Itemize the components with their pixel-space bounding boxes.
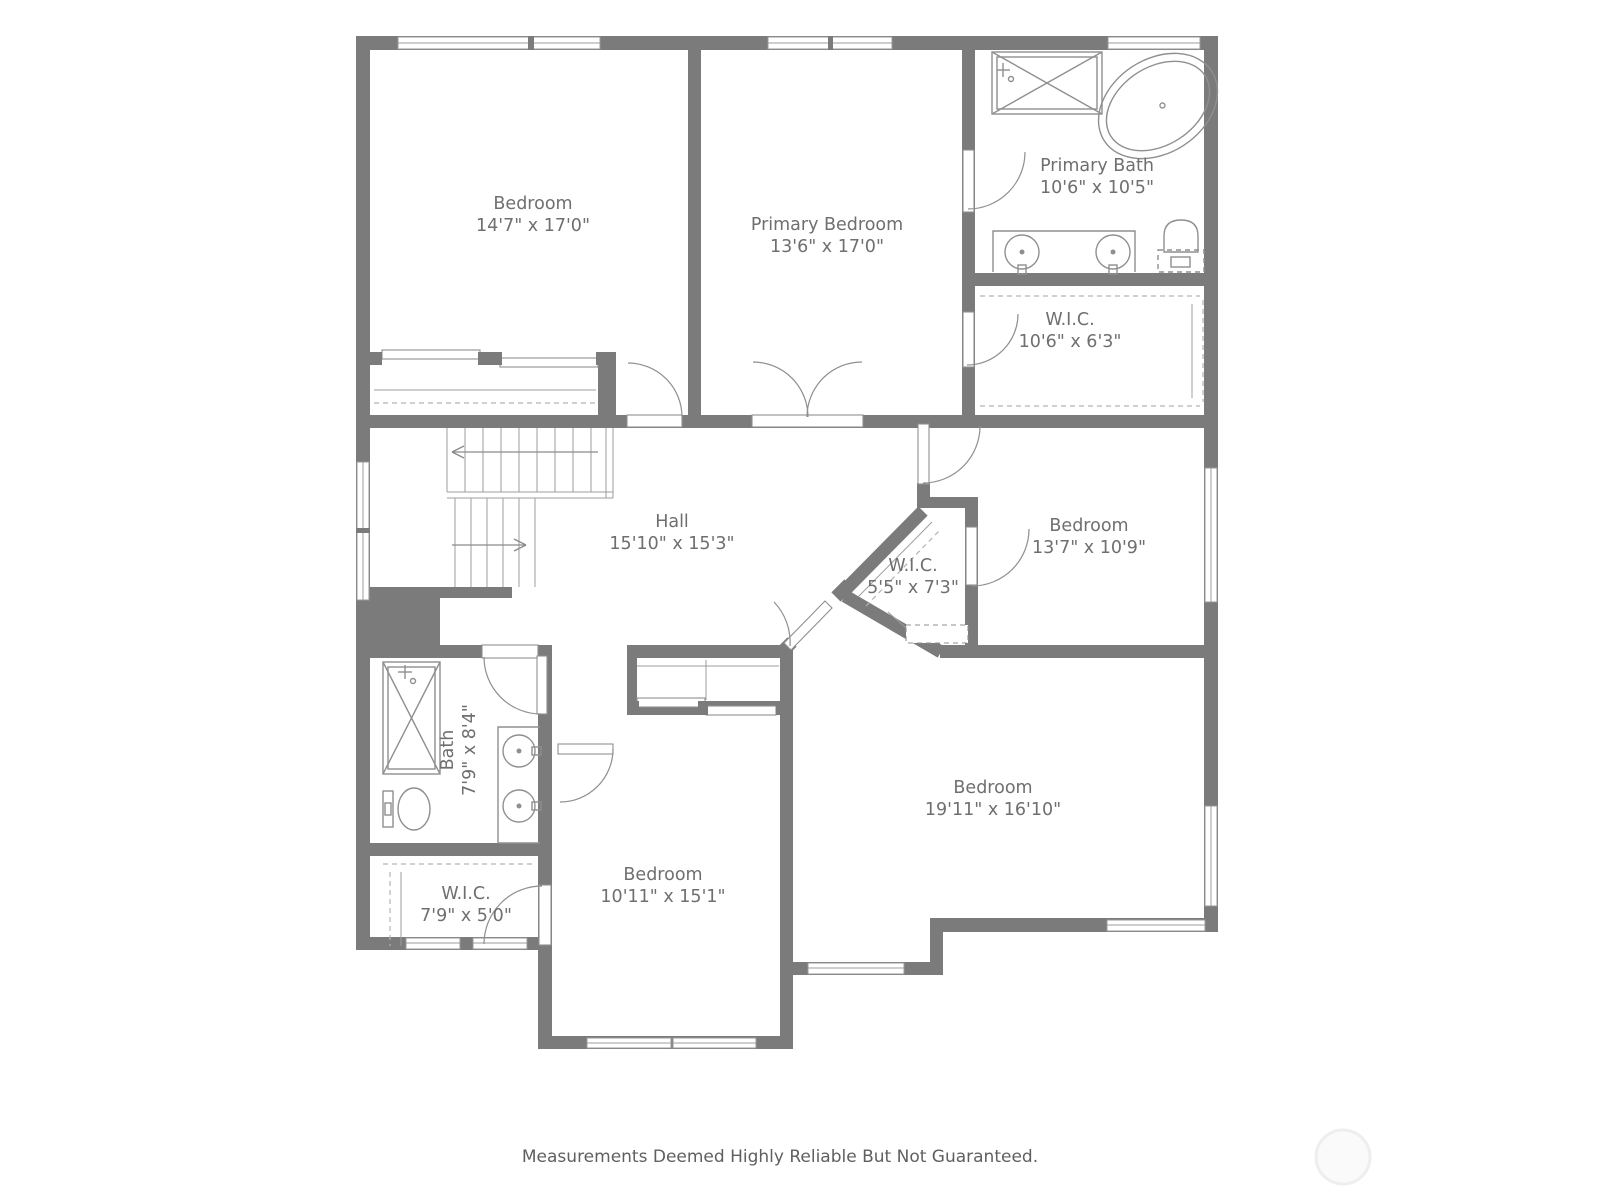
door-wic-small <box>966 527 1029 586</box>
wall-b13-b19 <box>940 645 1218 658</box>
window-bedroom19-bottom <box>1107 920 1205 931</box>
window-bedroom19-right <box>1205 806 1217 906</box>
room-dims-bedroom-large: 19'11" x 16'10" <box>925 800 1061 820</box>
room-label-primary-bedroom: Primary Bedroom <box>751 215 903 235</box>
door-leaf <box>963 150 974 212</box>
doors <box>482 150 1029 945</box>
room-label-bedroom-bottom: Bedroom <box>623 865 702 885</box>
toilet-icon <box>383 788 430 830</box>
wall-closet-mid-left <box>627 658 637 703</box>
door-arc <box>628 363 682 417</box>
door-arc <box>968 152 1025 209</box>
floor-plan-diagram: Bedroom 14'7" x 17'0" Primary Bedroom 13… <box>0 0 1600 1200</box>
watermark-circle <box>1316 1130 1370 1184</box>
closet-wic-lower <box>383 864 536 946</box>
sink-icon <box>1096 235 1130 274</box>
room-label-bedroom-large: Bedroom <box>953 778 1032 798</box>
closet-midbedroom <box>627 660 793 715</box>
door-bedroom13 <box>918 424 980 484</box>
door-primary-bath <box>963 150 1025 212</box>
shelf-box <box>906 625 968 643</box>
wall-diagonal-door-stub-b <box>836 584 849 597</box>
stair-arrow-lower <box>452 539 526 551</box>
sink-icon <box>503 790 541 822</box>
stair-treads-upper <box>447 428 613 498</box>
room-label-hall: Hall <box>655 512 689 532</box>
room-dims-bedroom-right: 13'7" x 10'9" <box>1032 538 1146 558</box>
door-leaf <box>918 424 929 484</box>
sliding-door-panel <box>500 358 598 367</box>
window-wic79-bottom-left <box>406 938 460 949</box>
door-primary-double <box>752 362 863 427</box>
door-leaf <box>966 527 977 585</box>
room-dims-bedroom-bottom: 10'11" x 15'1" <box>600 887 725 907</box>
stair-arrow-upper <box>452 446 598 458</box>
wall-stairs-bottom <box>438 587 512 598</box>
room-label-wic-small: W.I.C. <box>888 556 937 576</box>
door-leaf <box>537 656 547 714</box>
room-dims-primary-bath: 10'6" x 10'5" <box>1040 178 1154 198</box>
fixtures <box>383 32 1237 843</box>
wall-primary-bath <box>962 50 975 428</box>
sink-icon <box>503 735 541 767</box>
room-label-wic-lower: W.I.C. <box>441 884 490 904</box>
wall-bath-wic79 <box>356 843 552 856</box>
shower-icon <box>992 52 1102 114</box>
room-label-primary-bath: Primary Bath <box>1040 156 1154 176</box>
door-bedroomtl <box>627 363 682 427</box>
room-label-bedroom-right: Bedroom <box>1049 516 1128 536</box>
shower-icon <box>383 662 440 774</box>
room-dims-hall: 15'10" x 15'3" <box>609 534 734 554</box>
vanity-primary <box>993 231 1135 274</box>
door-arc <box>923 426 980 483</box>
room-label-bath: Bath <box>438 730 458 771</box>
door-leaf <box>558 744 613 754</box>
window-primary-top <box>768 36 892 50</box>
door-arc <box>807 362 862 417</box>
door-leaf <box>539 885 551 945</box>
wall-diagonal-wic55-bottom <box>845 596 941 652</box>
footer-disclaimer: Measurements Deemed Highly Reliable But … <box>522 1147 1038 1167</box>
wall-hall-closet-top <box>627 645 793 658</box>
room-dims-wic-primary: 10'6" x 6'3" <box>1019 332 1122 352</box>
sink-icon <box>1005 235 1039 274</box>
room-dims-primary-bedroom: 13'6" x 17'0" <box>770 237 884 257</box>
room-label-bedroom-tl: Bedroom <box>493 194 572 214</box>
window-midbedroom-bottom-left <box>587 1038 671 1048</box>
door-bath <box>482 645 547 714</box>
room-dims-bath: 7'9" x 8'4" <box>460 704 480 796</box>
sliding-door-panel <box>637 698 705 707</box>
window-left-stairs <box>356 462 370 600</box>
wall-closet-right <box>598 355 616 428</box>
window-midbedroom-bottom-right <box>673 1038 756 1048</box>
closet-bedroomtl <box>370 350 616 403</box>
window-step-bottom <box>808 963 904 974</box>
staircase <box>447 428 613 587</box>
door-midbedroom <box>558 744 613 802</box>
door-arc <box>972 529 1029 586</box>
sliding-door-panel <box>382 350 480 359</box>
door-leaf <box>627 415 682 427</box>
stair-treads-lower <box>455 498 535 587</box>
room-dims-wic-small: 5'5" x 7'3" <box>867 578 959 598</box>
door-arc <box>560 749 613 802</box>
room-dims-wic-lower: 7'9" x 5'0" <box>420 906 512 926</box>
window-bedroomtl-top <box>398 36 600 50</box>
floor-plan-page: Bedroom 14'7" x 17'0" Primary Bedroom 13… <box>0 0 1600 1200</box>
toilet-icon <box>1158 220 1204 272</box>
sliding-door-panel <box>706 706 776 715</box>
door-wic-primary <box>963 312 1018 367</box>
door-arc <box>484 657 541 714</box>
window-primarybath-top <box>1108 37 1200 49</box>
wall-bedroomtl-primary <box>688 36 701 428</box>
door-leaf <box>482 645 538 658</box>
door-arc <box>753 362 808 417</box>
room-dims-bedroom-tl: 14'7" x 17'0" <box>476 216 590 236</box>
wall-bath-wic <box>962 273 1218 286</box>
window-wic79-bottom-right <box>473 938 527 949</box>
chase-block <box>368 587 440 652</box>
window-bedroom13-right <box>1205 468 1217 602</box>
vanity-bath <box>498 727 541 843</box>
door-leaf <box>963 312 974 367</box>
room-label-wic-primary: W.I.C. <box>1045 310 1094 330</box>
door-leaf <box>784 601 832 650</box>
